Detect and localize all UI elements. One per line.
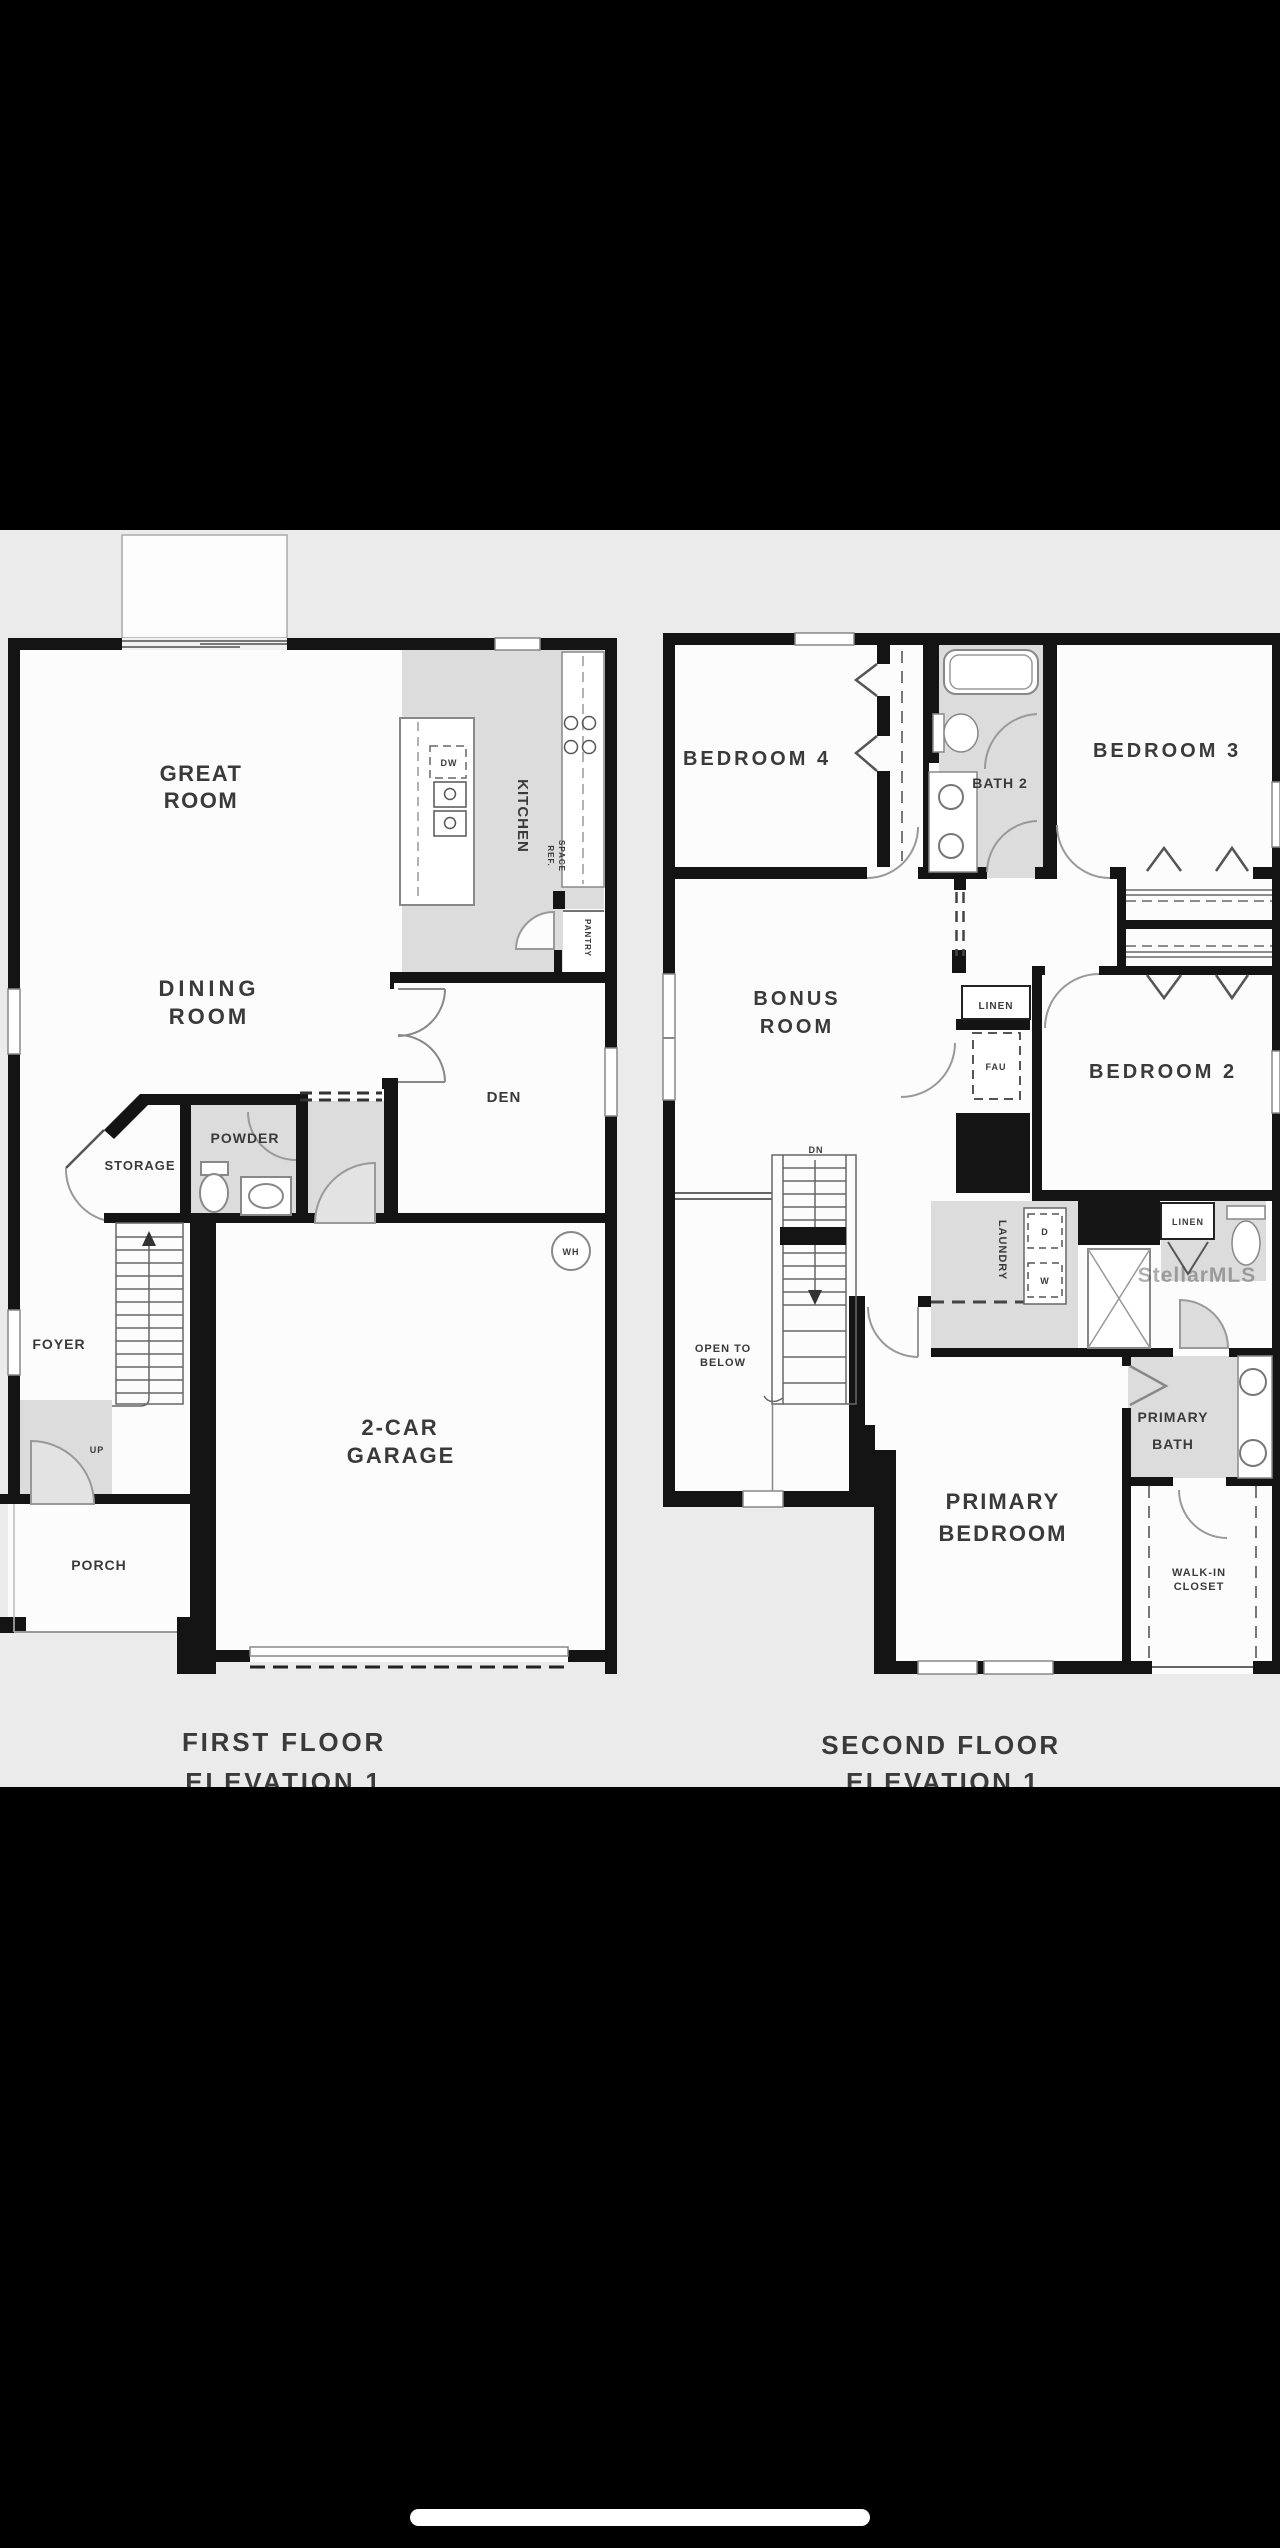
svg-text:W: W xyxy=(1040,1276,1050,1286)
svg-text:FAU: FAU xyxy=(986,1062,1007,1072)
svg-text:PRIMARY: PRIMARY xyxy=(946,1489,1061,1514)
svg-text:BEDROOM 4: BEDROOM 4 xyxy=(683,748,831,770)
svg-text:ROOM: ROOM xyxy=(169,1004,249,1029)
svg-text:BATH 2: BATH 2 xyxy=(972,775,1028,791)
svg-text:DINING: DINING xyxy=(159,976,260,1001)
svg-text:REF.: REF. xyxy=(546,845,555,866)
svg-text:BATH: BATH xyxy=(1152,1436,1194,1452)
svg-text:ROOM: ROOM xyxy=(760,1016,834,1038)
svg-text:SPACE: SPACE xyxy=(557,840,566,872)
svg-text:DW: DW xyxy=(441,758,458,768)
svg-text:SECOND FLOOR: SECOND FLOOR xyxy=(821,1730,1060,1760)
svg-text:DEN: DEN xyxy=(487,1089,522,1106)
svg-text:FIRST FLOOR: FIRST FLOOR xyxy=(182,1727,386,1757)
svg-text:LINEN: LINEN xyxy=(1172,1217,1204,1227)
svg-text:BEDROOM 2: BEDROOM 2 xyxy=(1089,1061,1237,1083)
svg-text:FOYER: FOYER xyxy=(32,1336,85,1352)
svg-text:DN: DN xyxy=(809,1145,824,1155)
svg-text:CLOSET: CLOSET xyxy=(1174,1581,1225,1593)
svg-text:GREAT: GREAT xyxy=(160,761,243,786)
svg-text:PORCH: PORCH xyxy=(71,1557,127,1573)
svg-text:BONUS: BONUS xyxy=(753,988,840,1010)
svg-text:ROOM: ROOM xyxy=(164,788,238,813)
svg-text:UP: UP xyxy=(90,1445,105,1455)
svg-text:STORAGE: STORAGE xyxy=(104,1158,175,1173)
svg-text:WH: WH xyxy=(563,1247,580,1257)
svg-text:D: D xyxy=(1041,1227,1049,1237)
svg-text:PRIMARY: PRIMARY xyxy=(1137,1409,1208,1425)
svg-text:LAUNDRY: LAUNDRY xyxy=(996,1220,1008,1280)
svg-text:POWDER: POWDER xyxy=(211,1130,280,1146)
svg-text:BEDROOM 3: BEDROOM 3 xyxy=(1093,740,1241,762)
svg-text:StellarMLS: StellarMLS xyxy=(1138,1264,1257,1287)
svg-text:GARAGE: GARAGE xyxy=(347,1443,456,1468)
svg-text:LINEN: LINEN xyxy=(979,1001,1014,1012)
svg-text:KITCHEN: KITCHEN xyxy=(514,779,531,853)
svg-text:OPEN TO: OPEN TO xyxy=(695,1343,751,1355)
svg-text:2-CAR: 2-CAR xyxy=(361,1415,438,1440)
svg-text:PANTRY: PANTRY xyxy=(583,919,592,957)
svg-text:WALK-IN: WALK-IN xyxy=(1172,1567,1226,1579)
svg-text:BEDROOM: BEDROOM xyxy=(939,1521,1068,1546)
svg-text:BELOW: BELOW xyxy=(700,1357,746,1369)
